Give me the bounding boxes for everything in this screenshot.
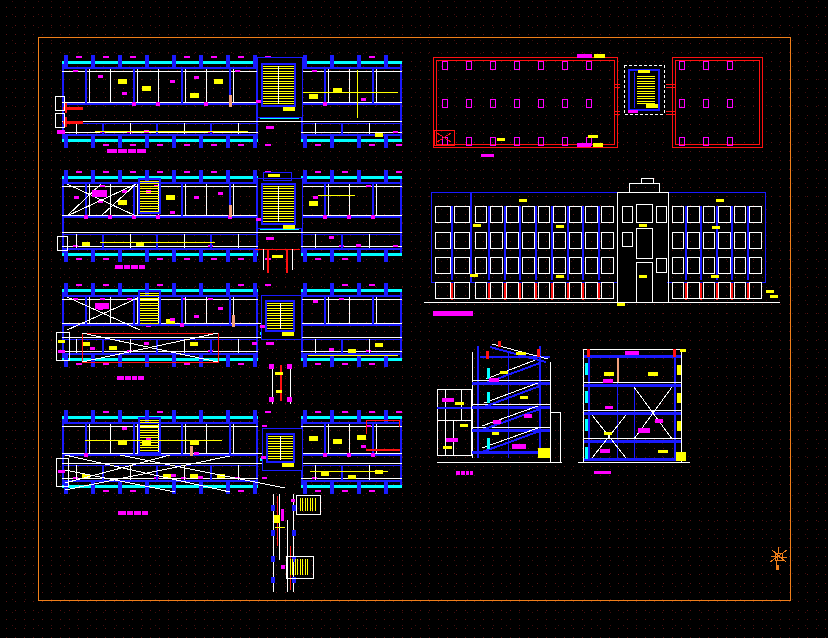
elevation-label[interactable] (433, 311, 473, 316)
floor-plan-3[interactable] (56, 283, 402, 404)
section-a-label[interactable] (456, 471, 473, 475)
north-arrow-symbol[interactable] (770, 547, 787, 570)
cross-section[interactable] (578, 349, 690, 462)
cad-viewport[interactable] (0, 0, 828, 638)
building-elevation[interactable] (424, 178, 780, 306)
floor-plan-1-label[interactable] (107, 149, 146, 153)
roof-plan[interactable] (433, 54, 762, 147)
roof-plan-label[interactable] (481, 154, 494, 157)
stair-section[interactable] (437, 341, 562, 462)
drawing-canvas[interactable] (0, 0, 828, 638)
floor-plan-4-label[interactable] (118, 511, 148, 515)
floor-plan-4[interactable] (56, 410, 402, 592)
floor-plan-3-label[interactable] (117, 376, 144, 380)
floor-plan-2[interactable] (57, 170, 402, 273)
floor-plan-1[interactable] (55, 55, 402, 148)
section-b-label[interactable] (594, 471, 611, 474)
floor-plan-2-label[interactable] (115, 265, 145, 269)
